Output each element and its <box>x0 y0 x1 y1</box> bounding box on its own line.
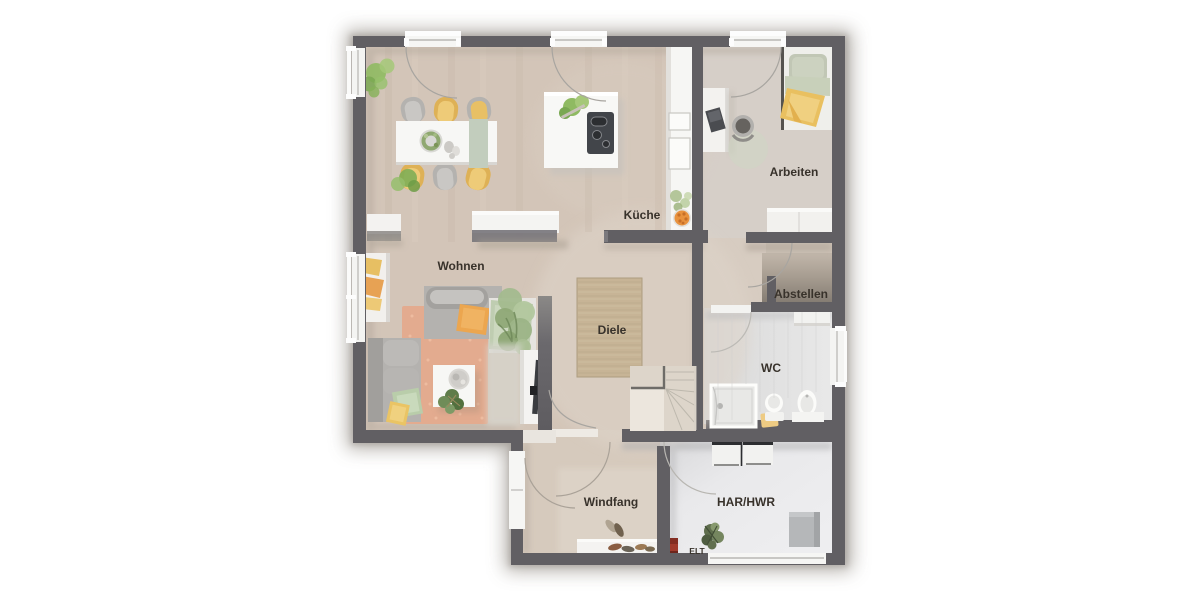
svg-text:Diele: Diele <box>598 323 627 337</box>
svg-text:HAR/HWR: HAR/HWR <box>717 495 775 509</box>
svg-text:Arbeiten: Arbeiten <box>770 165 819 179</box>
svg-text:Küche: Küche <box>624 208 661 222</box>
svg-text:Abstellen: Abstellen <box>774 287 828 301</box>
svg-text:WC: WC <box>761 361 781 375</box>
svg-text:Wohnen: Wohnen <box>437 259 484 273</box>
svg-text:ELT: ELT <box>689 546 705 556</box>
svg-text:Windfang: Windfang <box>584 495 639 509</box>
